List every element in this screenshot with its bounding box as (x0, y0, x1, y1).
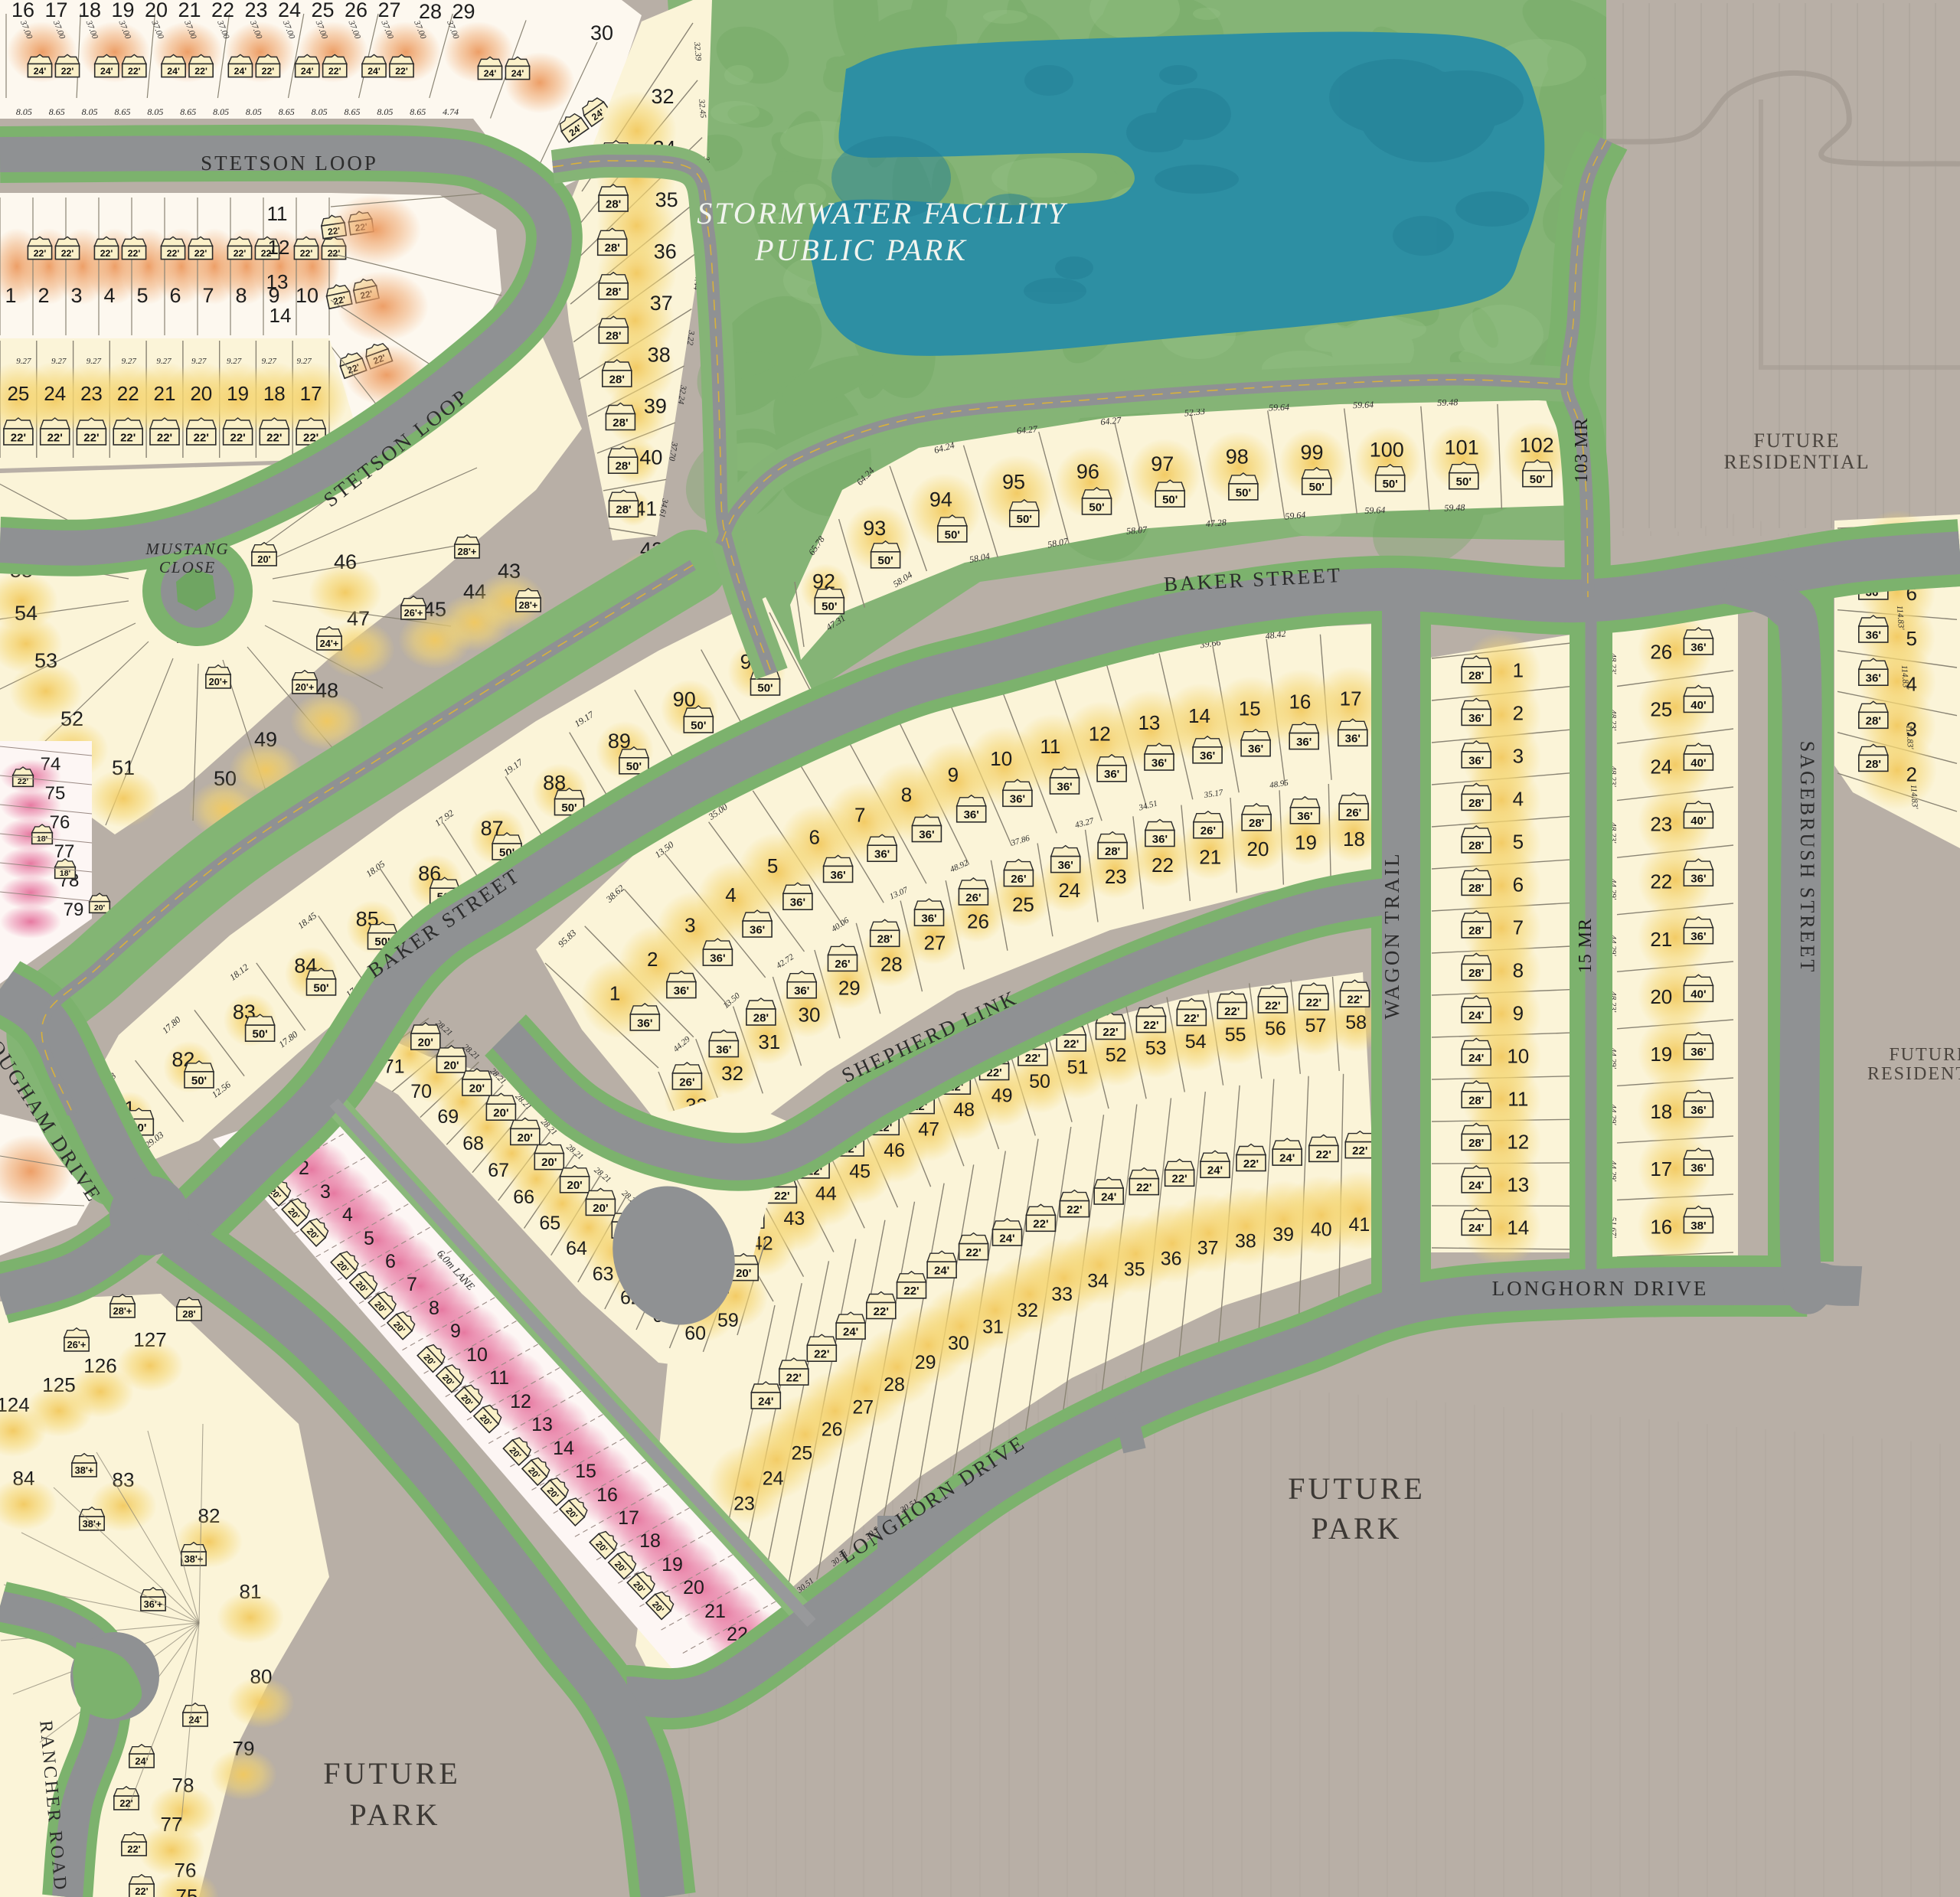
svg-text:99: 99 (1300, 441, 1323, 464)
svg-text:23: 23 (733, 1493, 755, 1514)
svg-text:28': 28' (1468, 882, 1484, 895)
svg-text:36': 36' (919, 828, 934, 841)
svg-text:36': 36' (921, 912, 936, 925)
svg-text:22': 22' (300, 248, 313, 259)
svg-text:36': 36' (1151, 756, 1167, 769)
svg-text:17: 17 (1340, 687, 1362, 710)
svg-text:19: 19 (661, 1554, 683, 1575)
svg-text:4: 4 (342, 1204, 353, 1226)
svg-text:24': 24' (34, 66, 47, 77)
svg-text:36': 36' (794, 984, 809, 997)
svg-text:58: 58 (1345, 1012, 1367, 1033)
svg-text:8: 8 (429, 1298, 439, 1319)
svg-text:36': 36' (1248, 743, 1263, 756)
svg-text:40: 40 (1311, 1219, 1332, 1241)
svg-text:26': 26' (965, 891, 981, 904)
svg-text:26: 26 (345, 0, 367, 21)
svg-text:24': 24' (934, 1265, 949, 1278)
svg-text:32.45: 32.45 (697, 98, 707, 119)
svg-text:9.27: 9.27 (156, 357, 171, 366)
svg-text:10: 10 (990, 747, 1012, 770)
svg-text:22': 22' (1102, 1026, 1118, 1039)
svg-text:37: 37 (1197, 1237, 1219, 1259)
svg-text:29: 29 (915, 1352, 936, 1373)
svg-text:40': 40' (1690, 699, 1706, 712)
svg-text:36': 36' (1057, 780, 1072, 793)
svg-text:36': 36' (964, 808, 979, 821)
svg-text:9.27: 9.27 (296, 357, 312, 366)
svg-text:24': 24' (1207, 1164, 1223, 1177)
svg-text:FUTURE: FUTURE (1753, 429, 1840, 452)
svg-text:24': 24' (1101, 1190, 1116, 1203)
svg-text:5: 5 (767, 854, 778, 877)
svg-text:18': 18' (60, 869, 70, 878)
svg-text:SAGEBRUSH STREET: SAGEBRUSH STREET (1796, 741, 1818, 974)
svg-text:22': 22' (128, 66, 141, 77)
svg-text:22': 22' (1306, 996, 1321, 1009)
svg-text:45: 45 (849, 1161, 871, 1183)
svg-text:6: 6 (385, 1251, 396, 1272)
svg-text:46: 46 (884, 1140, 905, 1161)
svg-text:100: 100 (1370, 439, 1404, 462)
svg-text:14: 14 (1188, 704, 1210, 727)
svg-text:33: 33 (1051, 1284, 1073, 1305)
svg-text:8.05: 8.05 (312, 106, 328, 117)
svg-text:29: 29 (838, 976, 861, 999)
svg-text:59.64: 59.64 (1285, 509, 1306, 521)
svg-text:94: 94 (929, 488, 952, 511)
svg-text:50: 50 (1029, 1071, 1050, 1092)
svg-text:41: 41 (1348, 1214, 1370, 1236)
svg-text:22': 22' (1243, 1157, 1259, 1171)
svg-text:9.27: 9.27 (191, 357, 207, 366)
svg-text:36': 36' (1058, 859, 1073, 872)
svg-text:26: 26 (967, 910, 989, 933)
svg-text:3: 3 (320, 1181, 331, 1203)
svg-text:25: 25 (1012, 893, 1034, 916)
svg-text:28': 28' (1468, 924, 1484, 937)
svg-text:7: 7 (407, 1274, 417, 1295)
svg-text:51: 51 (1067, 1057, 1089, 1079)
svg-text:22': 22' (1136, 1181, 1151, 1194)
svg-text:17: 17 (44, 0, 67, 21)
svg-text:50': 50' (1309, 481, 1325, 494)
svg-text:20': 20' (257, 553, 270, 565)
svg-text:22': 22' (1143, 1019, 1158, 1032)
svg-text:FUTURE: FUTURE (1889, 1045, 1960, 1065)
svg-text:24: 24 (278, 0, 301, 21)
svg-text:16: 16 (1650, 1215, 1672, 1238)
svg-text:47: 47 (918, 1119, 939, 1141)
svg-text:95: 95 (1002, 471, 1025, 494)
svg-text:50': 50' (757, 681, 773, 694)
svg-text:28: 28 (884, 1374, 905, 1396)
svg-text:22': 22' (262, 66, 275, 77)
svg-text:5: 5 (1513, 831, 1524, 854)
svg-text:25: 25 (1650, 697, 1672, 720)
svg-text:64.27: 64.27 (1016, 423, 1038, 436)
svg-text:36': 36' (1690, 872, 1706, 885)
svg-text:102: 102 (1520, 434, 1554, 457)
svg-text:22': 22' (194, 66, 207, 77)
svg-text:58.07: 58.07 (1125, 524, 1148, 536)
svg-text:8.05: 8.05 (246, 106, 262, 117)
svg-text:13: 13 (1138, 711, 1160, 734)
svg-text:9.27: 9.27 (122, 357, 137, 366)
svg-text:8: 8 (1513, 959, 1524, 982)
svg-text:PARK: PARK (349, 1797, 440, 1832)
svg-text:24': 24' (1468, 1052, 1484, 1065)
svg-text:32: 32 (1017, 1300, 1038, 1321)
svg-text:36': 36' (1104, 768, 1119, 781)
svg-text:9: 9 (948, 763, 959, 786)
svg-text:54: 54 (1185, 1031, 1207, 1053)
svg-text:28': 28' (606, 198, 621, 211)
svg-text:55: 55 (1225, 1024, 1246, 1046)
svg-text:22': 22' (874, 1305, 889, 1318)
svg-text:24': 24' (1468, 1222, 1484, 1235)
svg-text:36': 36' (1200, 749, 1215, 762)
svg-text:49: 49 (991, 1085, 1013, 1106)
svg-text:22': 22' (1033, 1218, 1048, 1231)
svg-text:28': 28' (1468, 669, 1484, 682)
svg-text:9.27: 9.27 (227, 357, 242, 366)
svg-text:36': 36' (790, 896, 805, 909)
svg-text:24': 24' (301, 66, 314, 77)
svg-text:28': 28' (1866, 715, 1881, 728)
svg-text:27: 27 (923, 932, 946, 955)
svg-text:36': 36' (750, 923, 765, 936)
svg-text:32: 32 (721, 1062, 743, 1085)
svg-text:64.27: 64.27 (1100, 414, 1122, 427)
svg-text:20': 20' (593, 1202, 608, 1215)
svg-text:10: 10 (1507, 1045, 1529, 1068)
svg-text:26': 26' (1011, 873, 1026, 886)
svg-text:15: 15 (1239, 697, 1261, 720)
svg-text:22': 22' (128, 248, 141, 259)
svg-text:96: 96 (1076, 460, 1099, 483)
svg-text:28': 28' (1468, 967, 1484, 980)
svg-text:32.39: 32.39 (692, 41, 703, 61)
svg-text:27: 27 (852, 1396, 874, 1418)
svg-text:6: 6 (1513, 873, 1524, 896)
svg-text:28': 28' (877, 933, 893, 946)
svg-text:50': 50' (945, 528, 960, 541)
svg-text:50': 50' (1017, 513, 1032, 526)
svg-text:8.05: 8.05 (147, 106, 163, 117)
svg-text:LONGHORN DRIVE: LONGHORN DRIVE (1492, 1277, 1709, 1300)
svg-text:44: 44 (815, 1183, 837, 1204)
svg-text:101: 101 (1445, 436, 1479, 459)
svg-text:52: 52 (1106, 1045, 1127, 1066)
svg-text:8.05: 8.05 (16, 106, 32, 117)
svg-text:20': 20' (443, 1059, 459, 1072)
svg-text:22': 22' (1347, 994, 1362, 1007)
svg-text:50': 50' (1530, 473, 1545, 486)
svg-text:28': 28' (1105, 845, 1120, 858)
svg-text:6: 6 (169, 284, 181, 307)
svg-text:8.05: 8.05 (213, 106, 229, 117)
svg-text:28': 28' (609, 373, 625, 386)
svg-text:3: 3 (684, 913, 695, 936)
svg-text:28': 28' (1468, 1094, 1484, 1107)
svg-text:3.22: 3.22 (685, 329, 696, 346)
svg-text:FUTURE: FUTURE (323, 1756, 461, 1791)
svg-text:22': 22' (1224, 1005, 1240, 1018)
svg-text:27: 27 (377, 0, 400, 21)
svg-text:8: 8 (901, 783, 912, 806)
svg-text:22': 22' (328, 66, 341, 77)
svg-text:24': 24' (511, 68, 524, 79)
svg-text:14: 14 (1507, 1216, 1529, 1239)
svg-text:26'+: 26'+ (404, 607, 423, 619)
svg-text:11: 11 (489, 1367, 509, 1389)
svg-text:FUTURE: FUTURE (1288, 1471, 1426, 1506)
svg-text:20': 20' (567, 1179, 582, 1192)
svg-text:50': 50' (252, 1027, 267, 1040)
svg-text:11: 11 (1040, 735, 1060, 758)
svg-text:28': 28' (753, 1011, 769, 1024)
svg-text:36': 36' (1866, 672, 1881, 685)
svg-text:RESIDENTIAL: RESIDENTIAL (1724, 451, 1870, 473)
svg-text:50': 50' (561, 802, 577, 815)
svg-text:22: 22 (1650, 870, 1672, 893)
svg-text:36': 36' (716, 1043, 731, 1056)
svg-text:30: 30 (799, 1004, 821, 1027)
svg-text:21: 21 (178, 0, 201, 21)
svg-text:36': 36' (1690, 1104, 1706, 1117)
svg-text:25: 25 (311, 0, 334, 21)
svg-text:22': 22' (135, 1886, 148, 1897)
svg-text:8.65: 8.65 (49, 106, 65, 117)
svg-text:38: 38 (648, 343, 671, 366)
svg-text:36': 36' (1468, 712, 1484, 725)
svg-text:48: 48 (953, 1099, 975, 1121)
svg-text:26'+: 26'+ (67, 1339, 87, 1350)
svg-text:36': 36' (1345, 733, 1361, 746)
svg-text:28': 28' (606, 286, 621, 299)
svg-text:22': 22' (119, 1797, 132, 1809)
svg-text:MUSTANG: MUSTANG (145, 540, 229, 558)
svg-text:22': 22' (194, 248, 207, 259)
svg-text:26': 26' (1200, 824, 1216, 837)
svg-text:1: 1 (5, 284, 16, 307)
svg-text:64: 64 (566, 1238, 587, 1259)
svg-text:35: 35 (1124, 1259, 1145, 1281)
svg-text:39: 39 (644, 394, 667, 417)
svg-text:50': 50' (313, 981, 328, 994)
svg-text:2: 2 (647, 948, 658, 971)
svg-text:31: 31 (982, 1317, 1004, 1338)
svg-text:22': 22' (234, 248, 247, 259)
svg-text:20'+: 20'+ (209, 676, 228, 687)
svg-text:40: 40 (639, 446, 662, 469)
svg-text:63: 63 (593, 1264, 614, 1285)
svg-text:22': 22' (194, 431, 209, 444)
svg-text:9: 9 (1513, 1002, 1524, 1025)
svg-text:50': 50' (1236, 486, 1251, 499)
svg-text:56: 56 (1265, 1018, 1286, 1040)
svg-text:36': 36' (830, 869, 845, 882)
svg-text:20': 20' (518, 1131, 533, 1144)
svg-text:60: 60 (684, 1323, 706, 1344)
svg-text:23: 23 (1650, 813, 1672, 836)
svg-text:22': 22' (1063, 1037, 1079, 1050)
svg-text:22': 22' (395, 66, 408, 77)
svg-text:13: 13 (531, 1414, 553, 1435)
svg-text:23: 23 (244, 0, 267, 21)
svg-text:40': 40' (1690, 815, 1706, 828)
svg-text:17: 17 (618, 1507, 639, 1529)
svg-text:25: 25 (791, 1442, 812, 1464)
svg-text:WAGON TRAIL: WAGON TRAIL (1380, 851, 1403, 1019)
svg-text:12: 12 (268, 236, 290, 259)
svg-text:24: 24 (763, 1468, 784, 1489)
svg-text:15: 15 (575, 1461, 596, 1482)
svg-text:59: 59 (717, 1310, 739, 1331)
svg-text:59.64: 59.64 (1353, 399, 1374, 410)
svg-text:36': 36' (874, 848, 890, 861)
svg-text:59.48: 59.48 (1444, 502, 1465, 514)
svg-text:11: 11 (1508, 1087, 1528, 1110)
svg-text:28': 28' (616, 504, 631, 517)
svg-text:20': 20' (94, 903, 105, 913)
svg-text:93: 93 (863, 517, 886, 540)
svg-text:9.27: 9.27 (262, 357, 277, 366)
svg-text:114.83': 114.83' (1909, 785, 1919, 810)
svg-text:28': 28' (1468, 839, 1484, 852)
svg-text:7: 7 (1513, 916, 1524, 939)
svg-text:6: 6 (808, 826, 819, 849)
svg-text:90: 90 (673, 688, 696, 711)
svg-text:79: 79 (64, 900, 84, 920)
svg-text:26': 26' (835, 958, 850, 971)
svg-text:36'+: 36'+ (144, 1598, 163, 1610)
svg-text:18': 18' (37, 834, 47, 844)
svg-text:28'+: 28'+ (113, 1305, 132, 1317)
svg-text:12: 12 (1089, 722, 1111, 745)
svg-text:25: 25 (7, 382, 29, 405)
svg-text:20': 20' (736, 1267, 751, 1280)
svg-text:68: 68 (462, 1133, 484, 1154)
svg-text:24'+: 24'+ (320, 638, 339, 649)
svg-text:22': 22' (266, 431, 282, 444)
svg-text:103 MR: 103 MR (1572, 417, 1592, 482)
svg-text:28': 28' (612, 416, 628, 429)
svg-text:37: 37 (650, 292, 673, 315)
svg-text:21: 21 (154, 382, 176, 405)
svg-text:97: 97 (1151, 452, 1174, 475)
svg-text:22': 22' (11, 431, 26, 444)
svg-text:22': 22' (1316, 1148, 1331, 1161)
svg-text:22: 22 (117, 382, 139, 405)
svg-text:21: 21 (704, 1601, 726, 1622)
svg-text:8: 8 (235, 284, 247, 307)
svg-text:69: 69 (437, 1106, 459, 1128)
svg-text:28'+: 28'+ (519, 599, 538, 611)
svg-text:38: 38 (1235, 1230, 1256, 1252)
svg-text:22': 22' (127, 1843, 140, 1855)
svg-text:16: 16 (1289, 690, 1311, 713)
svg-text:22: 22 (1151, 854, 1174, 877)
svg-text:19: 19 (227, 382, 249, 405)
svg-text:14: 14 (269, 304, 292, 327)
svg-text:24': 24' (484, 68, 497, 79)
svg-text:1: 1 (1513, 659, 1524, 682)
svg-text:50': 50' (191, 1074, 207, 1087)
svg-text:22': 22' (83, 431, 99, 444)
svg-text:20: 20 (1247, 837, 1269, 860)
svg-text:5: 5 (1906, 627, 1916, 650)
svg-text:24: 24 (1058, 879, 1080, 902)
svg-text:36': 36' (1296, 736, 1312, 749)
svg-text:13: 13 (266, 270, 289, 293)
svg-text:8.65: 8.65 (410, 106, 426, 117)
svg-text:24': 24' (100, 66, 113, 77)
svg-text:50': 50' (1456, 475, 1472, 488)
svg-text:36': 36' (1297, 810, 1312, 823)
svg-text:4: 4 (103, 284, 115, 307)
svg-text:66: 66 (513, 1187, 534, 1208)
svg-text:36': 36' (1690, 1161, 1706, 1174)
svg-text:32: 32 (651, 85, 674, 108)
svg-text:9.27: 9.27 (87, 357, 102, 366)
svg-text:19: 19 (111, 0, 134, 21)
svg-text:24': 24' (843, 1325, 858, 1338)
svg-text:70: 70 (410, 1081, 432, 1102)
svg-text:36': 36' (1468, 754, 1484, 767)
svg-text:22': 22' (100, 248, 113, 259)
svg-text:19: 19 (1295, 831, 1317, 854)
svg-text:24': 24' (367, 66, 381, 77)
svg-text:36': 36' (1690, 1046, 1706, 1059)
svg-text:114.83': 114.83' (1895, 606, 1906, 631)
svg-text:12: 12 (1507, 1130, 1529, 1153)
svg-text:36': 36' (1690, 930, 1706, 943)
svg-text:21: 21 (1650, 928, 1672, 951)
svg-text:11: 11 (267, 202, 288, 225)
svg-text:22': 22' (157, 431, 172, 444)
svg-text:12: 12 (510, 1391, 531, 1412)
svg-text:36: 36 (1161, 1248, 1182, 1269)
svg-text:28': 28' (1249, 817, 1264, 830)
svg-text:24: 24 (1650, 756, 1672, 779)
svg-text:29: 29 (452, 0, 475, 23)
svg-text:36': 36' (1690, 641, 1706, 654)
svg-text:22': 22' (903, 1285, 919, 1298)
svg-text:36': 36' (674, 984, 689, 997)
svg-text:5: 5 (136, 284, 148, 307)
svg-text:22': 22' (1352, 1144, 1367, 1157)
svg-text:59.48: 59.48 (1437, 397, 1458, 408)
svg-text:38': 38' (1690, 1219, 1706, 1233)
svg-text:20': 20' (541, 1156, 557, 1169)
svg-text:75: 75 (176, 1885, 198, 1897)
svg-text:7: 7 (854, 804, 865, 827)
svg-text:8.65: 8.65 (115, 106, 131, 117)
svg-text:4: 4 (1513, 788, 1524, 811)
svg-text:10: 10 (466, 1344, 488, 1366)
svg-text:20: 20 (1650, 985, 1672, 1008)
svg-text:22': 22' (1265, 999, 1280, 1012)
svg-text:14: 14 (553, 1438, 574, 1459)
svg-text:28': 28' (606, 330, 621, 343)
svg-text:67: 67 (488, 1160, 509, 1181)
svg-text:22': 22' (230, 431, 245, 444)
svg-text:114.83': 114.83' (1900, 665, 1910, 691)
svg-text:40': 40' (1690, 988, 1706, 1001)
svg-text:28': 28' (182, 1308, 195, 1320)
